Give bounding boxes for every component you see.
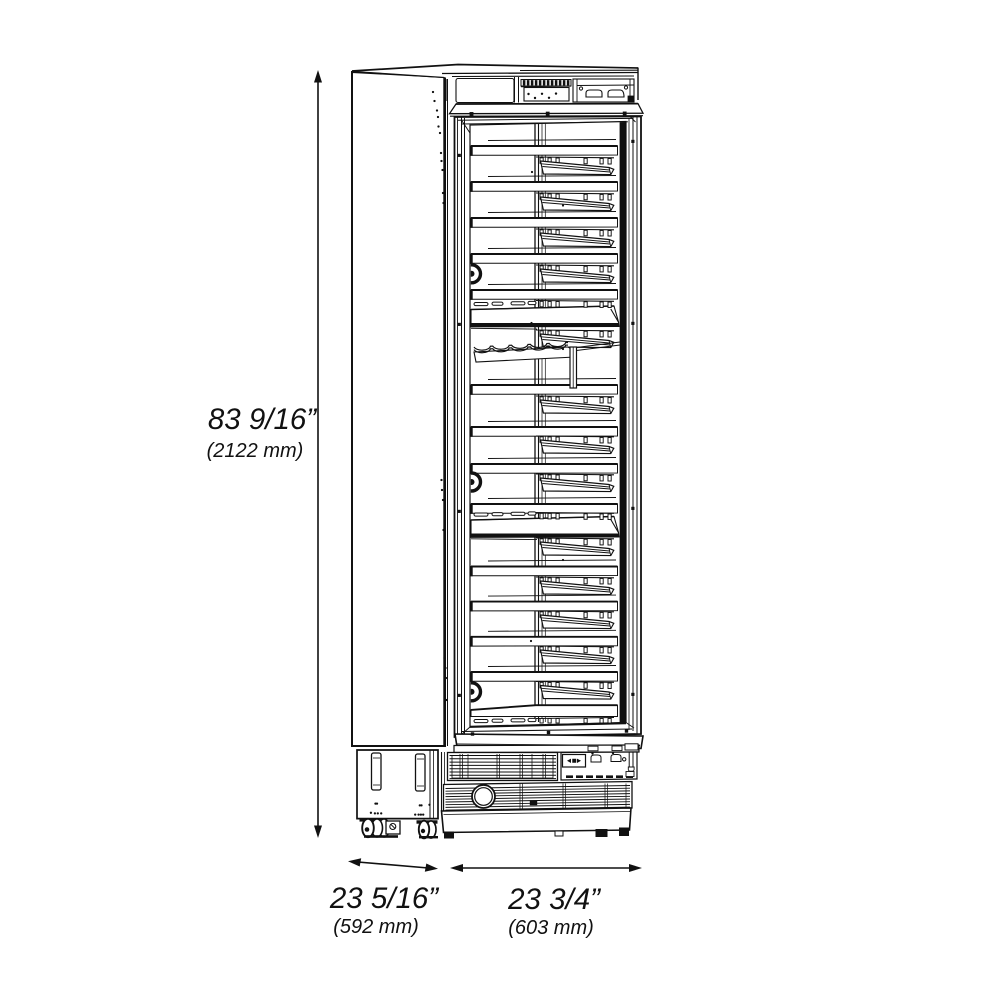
svg-text:23 3/4”: 23 3/4”: [507, 883, 601, 916]
svg-text:(592 mm): (592 mm): [333, 916, 419, 938]
svg-text:(2122 mm): (2122 mm): [207, 440, 304, 462]
svg-text:83 9/16”: 83 9/16”: [208, 403, 317, 436]
svg-text:23 5/16”: 23 5/16”: [329, 882, 439, 915]
svg-text:(603 mm): (603 mm): [508, 917, 594, 939]
